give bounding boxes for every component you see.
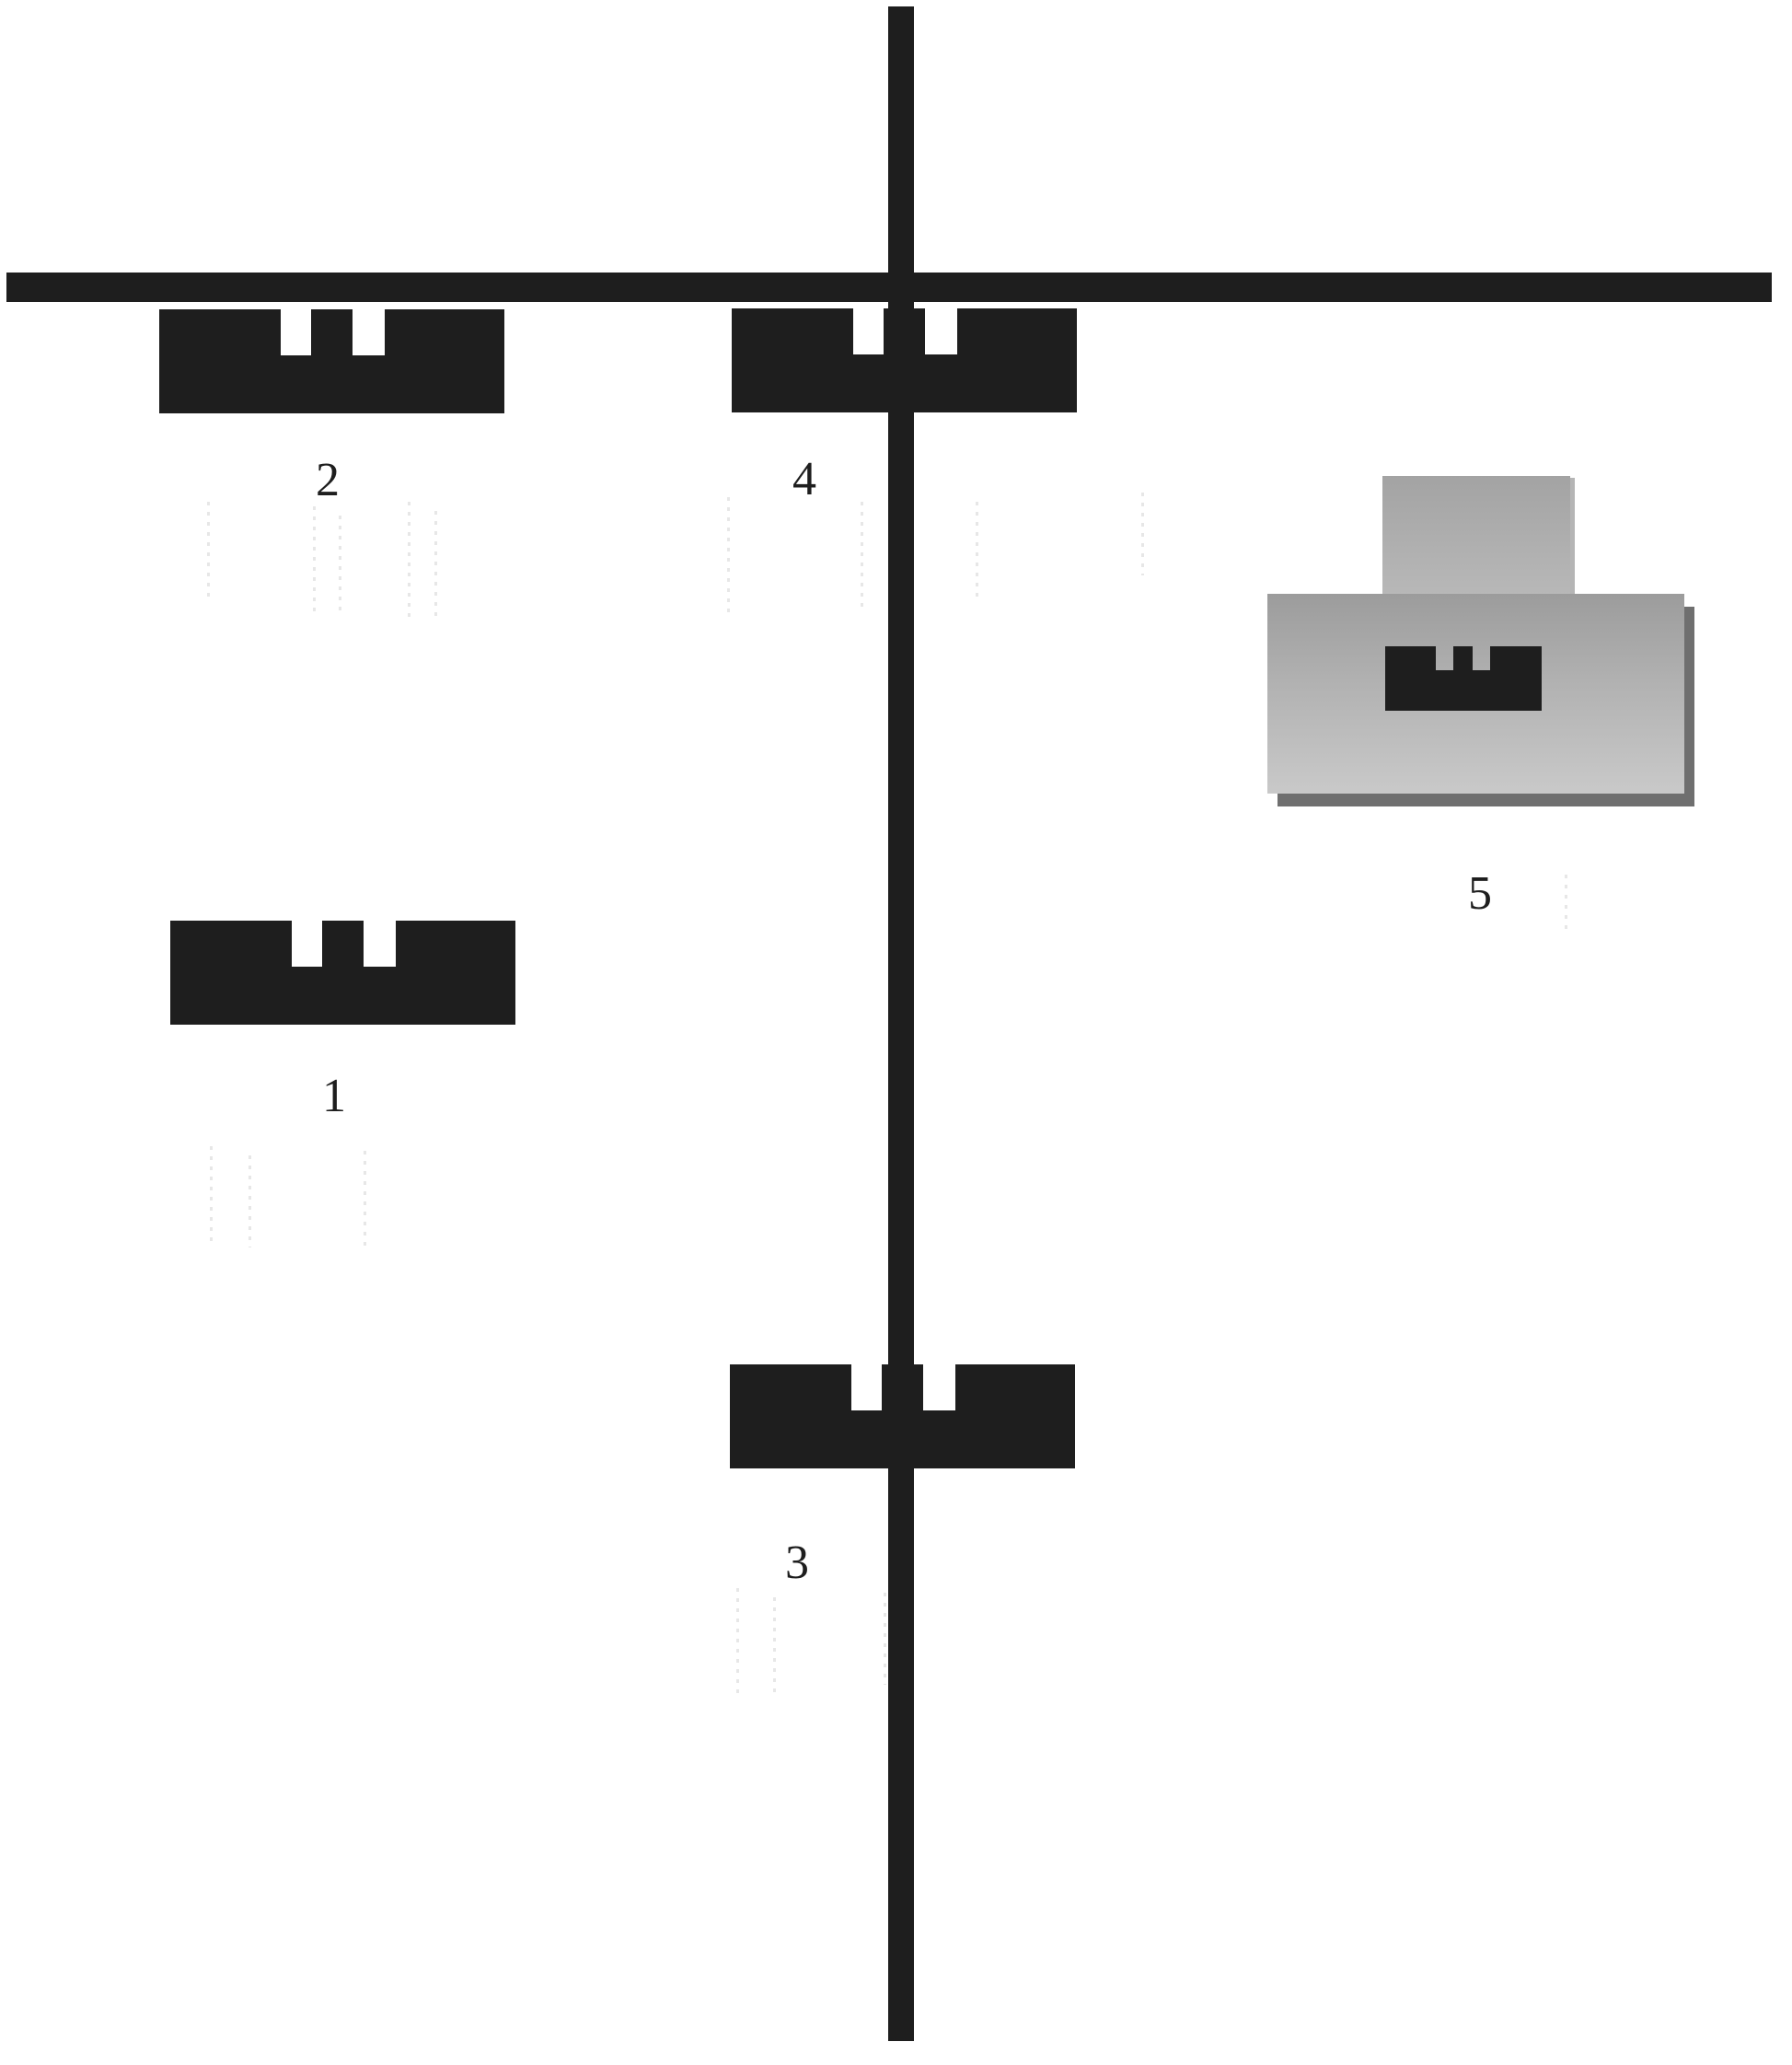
label-part-4: 4 [792,456,816,504]
comb-shape [732,308,1077,412]
scan-artifact [976,502,978,598]
label-part-2: 2 [316,457,340,505]
scan-artifact [773,1597,776,1699]
scan-artifact [339,516,341,617]
scan-artifact [434,511,437,617]
part-5-comb-insert [1385,646,1542,711]
label-part-1: 1 [322,1073,346,1120]
scan-artifact [736,1588,739,1699]
scan-artifact [313,506,316,617]
comb-shape-small [1385,646,1542,711]
part-2-comb-block [159,309,504,413]
label-part-5: 5 [1468,870,1492,918]
scan-artifact [727,497,730,617]
part-4-comb-block [732,308,1077,412]
scan-artifact [249,1155,251,1247]
patent-figure-canvas: 2 4 5 1 3 [0,0,1792,2065]
scan-artifact [364,1151,366,1247]
plate-body [1267,594,1684,794]
scan-artifact [861,502,863,612]
comb-shape [170,921,515,1025]
label-part-3: 3 [785,1539,809,1587]
part-5-plate-assembly [1267,476,1700,812]
comb-shape [159,309,504,413]
part-1-comb-block [170,921,515,1025]
comb-shape [730,1364,1075,1468]
scan-artifact [408,502,410,621]
scan-artifact [207,502,210,603]
part-3-comb-block [730,1364,1075,1468]
scan-artifact [884,1593,886,1685]
scan-artifact [210,1146,213,1247]
scan-artifact [1565,875,1567,930]
scan-artifact [1141,493,1144,575]
plate-top-tab [1382,476,1570,596]
horizontal-rail [6,273,1772,302]
